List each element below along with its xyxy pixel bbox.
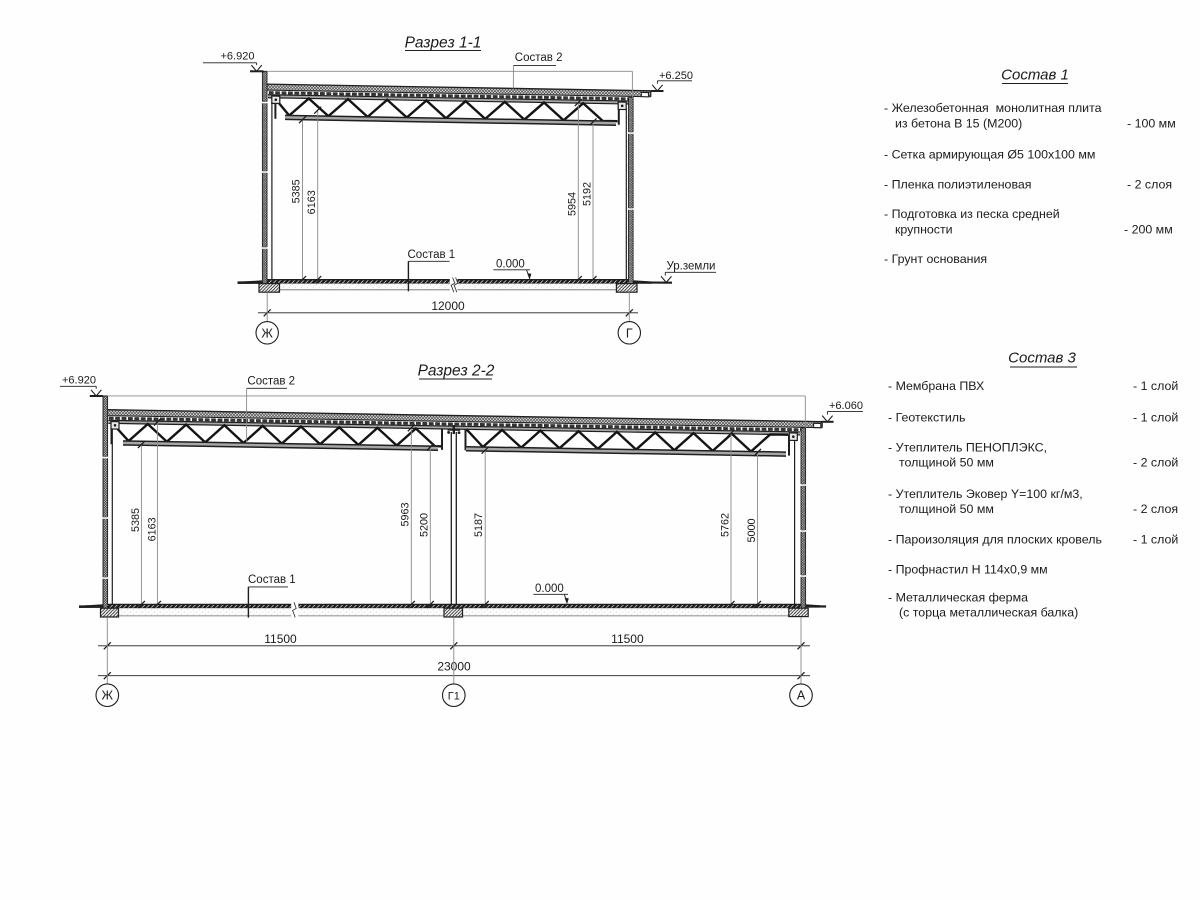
svg-text:толщиной 50 мм: толщиной 50 мм [899, 502, 994, 516]
svg-text:- Железобетонная монолитная п: - Железобетонная монолитная плита [884, 101, 1102, 115]
svg-text:Разрез 1-1: Разрез 1-1 [405, 35, 482, 52]
svg-text:5385: 5385 [130, 508, 142, 532]
svg-text:- 2 слоя: - 2 слоя [1127, 178, 1172, 192]
svg-text:5000: 5000 [746, 518, 758, 542]
svg-text:5954: 5954 [567, 192, 579, 216]
svg-text:+6.920: +6.920 [221, 51, 255, 63]
svg-text:- 1 слой: - 1 слой [1133, 379, 1178, 393]
svg-text:из бетона В 15 (М200): из бетона В 15 (М200) [895, 117, 1022, 131]
svg-text:Ж: Ж [261, 326, 273, 340]
svg-text:Ур.земли: Ур.земли [667, 260, 716, 272]
svg-text:Состав 3: Состав 3 [1008, 350, 1076, 367]
svg-text:5192: 5192 [582, 182, 594, 206]
svg-text:крупности: крупности [895, 223, 953, 237]
svg-text:- 1 слой: - 1 слой [1133, 533, 1178, 547]
svg-text:- Мембрана ПВХ: - Мембрана ПВХ [888, 379, 984, 393]
svg-text:11500: 11500 [611, 632, 644, 646]
svg-text:11500: 11500 [264, 632, 297, 646]
svg-text:+6.920: +6.920 [62, 374, 96, 386]
svg-text:5762: 5762 [720, 513, 732, 537]
svg-text:+6.060: +6.060 [829, 400, 863, 412]
svg-text:+6.250: +6.250 [659, 70, 693, 82]
svg-text:(с торца металлическая балка): (с торца металлическая балка) [899, 606, 1078, 620]
svg-text:толщиной 50 мм: толщиной 50 мм [899, 456, 994, 470]
svg-text:- 2 слоя: - 2 слоя [1133, 502, 1178, 516]
svg-text:- Профнастил Н 114х0,9 мм: - Профнастил Н 114х0,9 мм [888, 563, 1048, 577]
svg-text:6163: 6163 [147, 517, 159, 541]
svg-text:5963: 5963 [399, 502, 411, 526]
svg-text:- Грунт основания: - Грунт основания [884, 252, 987, 266]
svg-text:Состав 1: Состав 1 [248, 574, 296, 586]
svg-text:А: А [797, 689, 806, 703]
svg-text:Состав 1: Состав 1 [1001, 67, 1069, 84]
svg-text:5187: 5187 [473, 513, 485, 537]
svg-text:- Пленка полиэтиленовая: - Пленка полиэтиленовая [884, 178, 1032, 192]
svg-text:0.000: 0.000 [496, 259, 525, 271]
svg-text:- Металлическая ферма: - Металлическая ферма [888, 591, 1028, 605]
svg-text:- 1 слой: - 1 слой [1133, 411, 1178, 425]
svg-text:- 2 слой: - 2 слой [1133, 456, 1178, 470]
svg-text:Состав 2: Состав 2 [247, 376, 295, 388]
svg-text:- Геотекстиль: - Геотекстиль [888, 411, 965, 425]
svg-text:- Пароизоляция для плоских кро: - Пароизоляция для плоских кровель [888, 533, 1102, 547]
svg-text:- 100 мм: - 100 мм [1127, 117, 1176, 131]
svg-text:Г: Г [626, 326, 633, 340]
svg-text:Состав 1: Состав 1 [408, 249, 456, 261]
svg-text:Г1: Г1 [448, 691, 460, 703]
svg-text:Ж: Ж [102, 689, 114, 703]
svg-text:- Сетка армирующая Ø5 100х100: - Сетка армирующая Ø5 100х100 мм [884, 148, 1095, 162]
svg-text:- Утеплитель ПЕНОПЛЭКС,: - Утеплитель ПЕНОПЛЭКС, [888, 441, 1047, 455]
svg-text:- Утеплитель Эковер Y=100 кг/м: - Утеплитель Эковер Y=100 кг/м3, [888, 487, 1083, 501]
svg-text:5385: 5385 [291, 179, 303, 203]
svg-text:6163: 6163 [306, 190, 318, 214]
svg-text:Разрез 2-2: Разрез 2-2 [418, 363, 495, 380]
svg-text:Состав 2: Состав 2 [515, 52, 563, 64]
svg-text:12000: 12000 [431, 299, 465, 313]
svg-text:- 200 мм: - 200 мм [1124, 223, 1173, 237]
svg-text:5200: 5200 [418, 513, 430, 537]
svg-text:- Подготовка из песка средней: - Подготовка из песка средней [884, 207, 1060, 221]
svg-text:0.000: 0.000 [535, 583, 564, 595]
